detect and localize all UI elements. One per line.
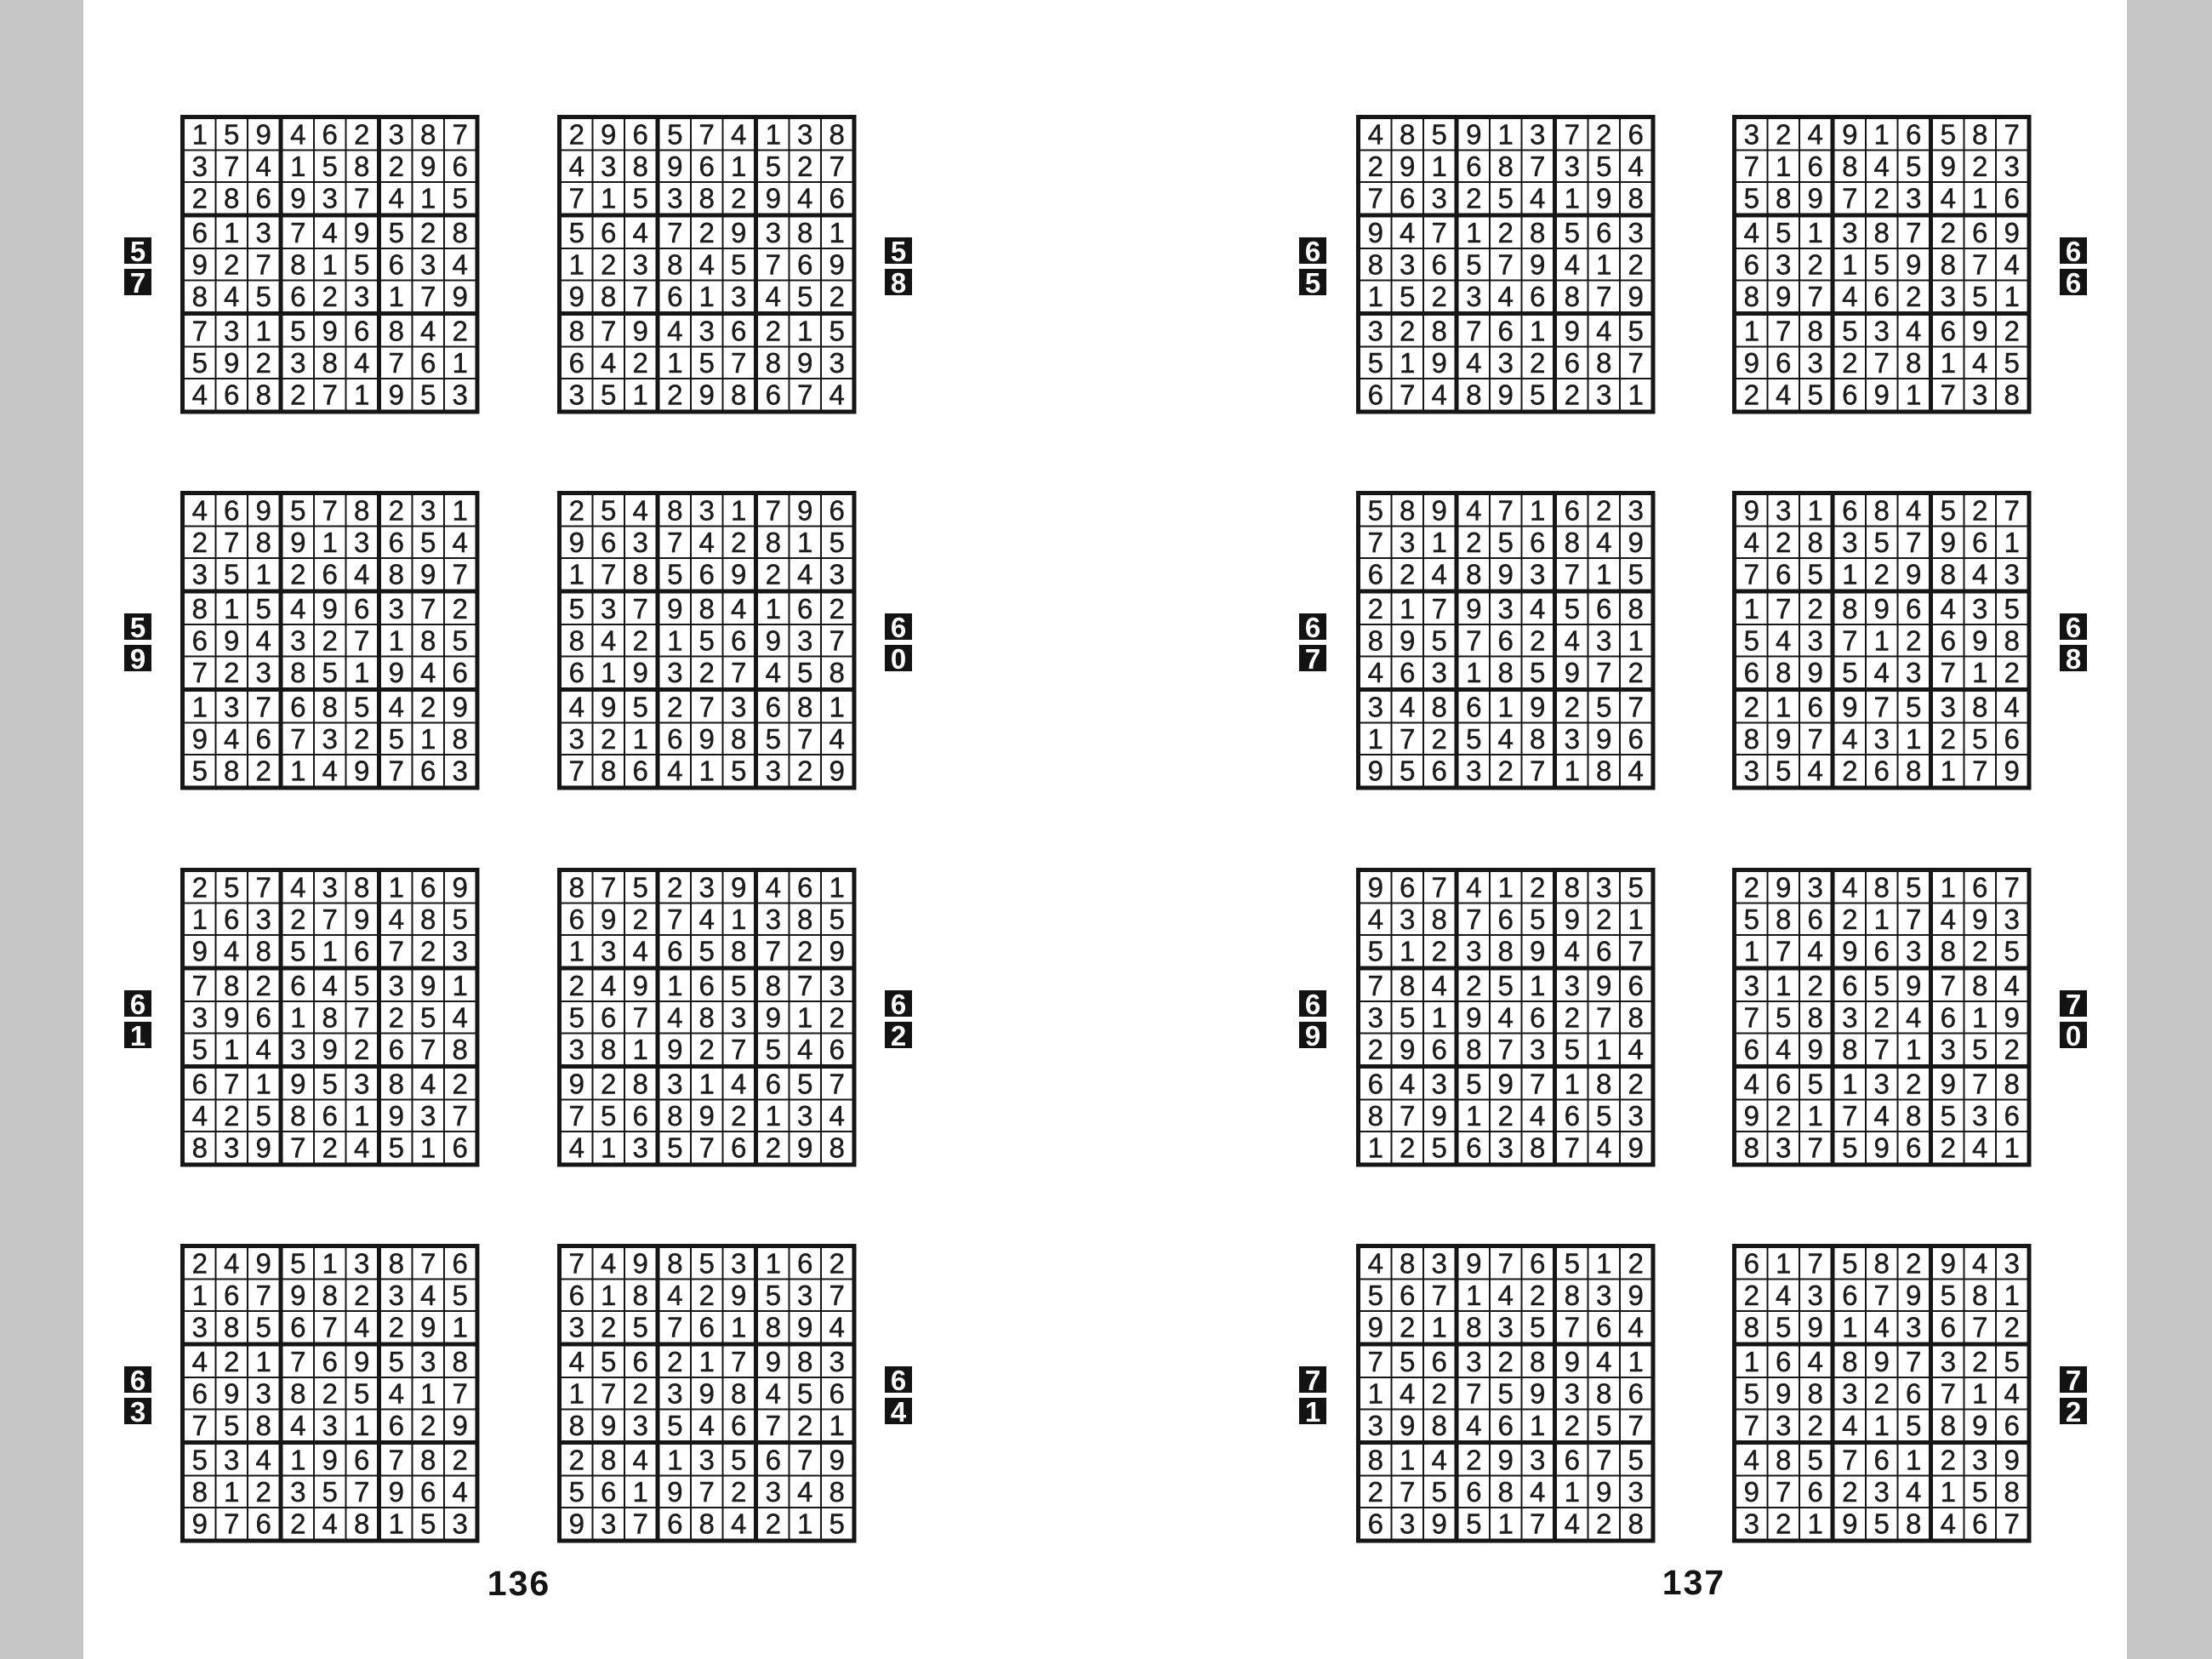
svg-text:8: 8 xyxy=(766,971,781,1002)
svg-text:8: 8 xyxy=(1842,151,1857,183)
svg-text:1: 1 xyxy=(569,1379,584,1411)
svg-text:8: 8 xyxy=(1565,873,1580,904)
svg-text:8: 8 xyxy=(1972,1280,1987,1312)
svg-text:9: 9 xyxy=(1628,282,1643,313)
svg-text:2: 2 xyxy=(667,1347,682,1378)
svg-text:5: 5 xyxy=(192,348,208,379)
svg-text:8: 8 xyxy=(192,1477,208,1508)
svg-text:7: 7 xyxy=(1596,1003,1611,1035)
svg-text:2: 2 xyxy=(2004,1313,2019,1344)
svg-text:4: 4 xyxy=(192,1101,208,1132)
svg-text:3: 3 xyxy=(797,1280,812,1312)
svg-text:6: 6 xyxy=(601,527,616,559)
svg-text:2: 2 xyxy=(1972,937,1987,968)
svg-text:7: 7 xyxy=(829,1280,844,1312)
svg-text:6: 6 xyxy=(354,937,369,968)
svg-text:7: 7 xyxy=(192,658,208,689)
svg-text:2: 2 xyxy=(1972,496,1987,527)
svg-text:8: 8 xyxy=(829,1133,844,1165)
svg-text:7: 7 xyxy=(1776,316,1791,348)
svg-text:6: 6 xyxy=(192,1069,208,1101)
svg-text:9: 9 xyxy=(1368,756,1383,788)
svg-text:2: 2 xyxy=(1744,380,1759,412)
svg-text:1: 1 xyxy=(2004,1280,2019,1312)
svg-text:2: 2 xyxy=(1596,120,1611,151)
svg-text:8: 8 xyxy=(667,1101,682,1132)
svg-text:4: 4 xyxy=(569,151,584,183)
svg-text:8: 8 xyxy=(1498,937,1514,968)
svg-text:9: 9 xyxy=(2004,1003,2019,1035)
svg-text:6: 6 xyxy=(1565,496,1580,527)
svg-text:3: 3 xyxy=(1431,1069,1446,1101)
svg-text:8: 8 xyxy=(255,380,271,412)
svg-text:4: 4 xyxy=(1368,658,1383,689)
svg-text:7: 7 xyxy=(1565,1133,1580,1165)
svg-text:5: 5 xyxy=(1744,184,1759,215)
svg-text:7: 7 xyxy=(1744,1411,1759,1442)
svg-text:2: 2 xyxy=(1368,594,1383,625)
svg-text:1: 1 xyxy=(2004,282,2019,313)
svg-text:2: 2 xyxy=(224,1101,239,1132)
svg-text:4: 4 xyxy=(1628,756,1643,788)
svg-text:8: 8 xyxy=(354,873,369,904)
svg-text:4: 4 xyxy=(1776,1035,1791,1066)
svg-text:5: 5 xyxy=(1972,1035,1987,1066)
svg-text:2: 2 xyxy=(1842,904,1857,936)
svg-text:7: 7 xyxy=(1565,560,1580,591)
svg-text:7: 7 xyxy=(1431,873,1446,904)
svg-text:5: 5 xyxy=(1972,724,1987,755)
svg-text:5: 5 xyxy=(290,496,305,527)
svg-text:4: 4 xyxy=(766,658,781,689)
svg-text:4: 4 xyxy=(255,151,271,183)
svg-text:7: 7 xyxy=(255,1280,271,1312)
svg-text:9: 9 xyxy=(322,1445,338,1477)
svg-text:8: 8 xyxy=(699,1003,715,1035)
svg-text:4: 4 xyxy=(1530,1101,1545,1132)
svg-text:7: 7 xyxy=(667,1313,682,1344)
svg-text:2: 2 xyxy=(1368,151,1383,183)
svg-text:4: 4 xyxy=(1628,1313,1643,1344)
svg-text:9: 9 xyxy=(1941,1069,1956,1101)
svg-text:4: 4 xyxy=(797,1477,812,1508)
svg-text:7: 7 xyxy=(420,1035,436,1066)
svg-text:2: 2 xyxy=(766,560,781,591)
svg-text:4: 4 xyxy=(1530,1477,1545,1508)
svg-text:8: 8 xyxy=(1368,1445,1383,1477)
svg-text:2: 2 xyxy=(290,1509,305,1541)
svg-text:1: 1 xyxy=(1431,1003,1446,1035)
svg-text:5: 5 xyxy=(1466,724,1481,755)
svg-text:6: 6 xyxy=(322,1101,338,1132)
svg-text:3: 3 xyxy=(192,1003,208,1035)
svg-text:2: 2 xyxy=(731,527,746,559)
svg-text:3: 3 xyxy=(290,1035,305,1066)
svg-text:3: 3 xyxy=(1874,1069,1890,1101)
svg-text:9: 9 xyxy=(2004,1445,2019,1477)
svg-text:9: 9 xyxy=(1628,527,1643,559)
svg-text:3: 3 xyxy=(354,527,369,559)
svg-text:8: 8 xyxy=(389,1069,404,1101)
svg-text:8: 8 xyxy=(1431,316,1446,348)
svg-text:3: 3 xyxy=(1498,1313,1514,1344)
svg-text:5: 5 xyxy=(1530,904,1545,936)
svg-text:9: 9 xyxy=(1744,348,1759,379)
svg-text:1: 1 xyxy=(224,594,239,625)
svg-text:4: 4 xyxy=(1906,1477,1921,1508)
svg-text:2: 2 xyxy=(1972,151,1987,183)
svg-text:1: 1 xyxy=(1941,756,1956,788)
svg-text:3: 3 xyxy=(389,594,404,625)
svg-text:4: 4 xyxy=(2004,250,2019,282)
svg-text:2: 2 xyxy=(1744,693,1759,724)
svg-text:2: 2 xyxy=(1596,904,1611,936)
svg-text:3: 3 xyxy=(1431,184,1446,215)
svg-text:4: 4 xyxy=(354,348,369,379)
svg-text:3: 3 xyxy=(601,151,616,183)
svg-text:9: 9 xyxy=(1842,120,1857,151)
svg-text:6: 6 xyxy=(699,971,715,1002)
svg-text:9: 9 xyxy=(1906,971,1921,1002)
svg-text:8: 8 xyxy=(699,594,715,625)
svg-text:5: 5 xyxy=(1498,184,1514,215)
svg-text:8: 8 xyxy=(1628,594,1643,625)
svg-text:9: 9 xyxy=(420,560,436,591)
svg-text:8: 8 xyxy=(1628,1003,1643,1035)
svg-text:4: 4 xyxy=(766,1379,781,1411)
svg-text:1: 1 xyxy=(354,1101,369,1132)
svg-text:1: 1 xyxy=(601,184,616,215)
svg-text:9: 9 xyxy=(389,380,404,412)
svg-text:7: 7 xyxy=(601,560,616,591)
svg-text:2: 2 xyxy=(290,904,305,936)
svg-text:5: 5 xyxy=(389,1133,404,1165)
svg-text:8: 8 xyxy=(2004,380,2019,412)
svg-text:7: 7 xyxy=(1628,348,1643,379)
svg-text:5: 5 xyxy=(452,626,467,658)
svg-text:2: 2 xyxy=(1565,380,1580,412)
svg-text:2: 2 xyxy=(829,594,844,625)
svg-text:4: 4 xyxy=(255,1035,271,1066)
svg-text:9: 9 xyxy=(1431,1509,1446,1541)
svg-text:3: 3 xyxy=(569,1313,584,1344)
svg-text:5: 5 xyxy=(1874,971,1890,1002)
svg-text:7: 7 xyxy=(1941,380,1956,412)
svg-text:7: 7 xyxy=(1498,250,1514,282)
svg-text:7: 7 xyxy=(1565,120,1580,151)
svg-text:5: 5 xyxy=(1530,658,1545,689)
svg-text:4: 4 xyxy=(1466,496,1481,527)
svg-text:5: 5 xyxy=(1941,1101,1956,1132)
svg-text:7: 7 xyxy=(290,1133,305,1165)
svg-text:6: 6 xyxy=(1498,316,1514,348)
svg-text:4: 4 xyxy=(1530,594,1545,625)
svg-text:5: 5 xyxy=(1776,1003,1791,1035)
svg-text:5: 5 xyxy=(2004,348,2019,379)
svg-text:1: 1 xyxy=(1565,1069,1580,1101)
svg-text:4: 4 xyxy=(224,282,239,313)
svg-text:1: 1 xyxy=(1628,626,1643,658)
svg-text:9: 9 xyxy=(322,594,338,625)
svg-text:7: 7 xyxy=(731,1035,746,1066)
svg-text:9: 9 xyxy=(1807,184,1822,215)
svg-text:3: 3 xyxy=(1744,120,1759,151)
svg-text:8: 8 xyxy=(192,594,208,625)
svg-text:7: 7 xyxy=(389,937,404,968)
svg-text:1: 1 xyxy=(1368,1133,1383,1165)
svg-text:8: 8 xyxy=(1842,594,1857,625)
svg-text:8: 8 xyxy=(1530,218,1545,249)
svg-text:9: 9 xyxy=(322,1035,338,1066)
svg-text:3: 3 xyxy=(224,316,239,348)
svg-text:7: 7 xyxy=(797,971,812,1002)
svg-text:1: 1 xyxy=(797,527,812,559)
svg-text:9: 9 xyxy=(797,496,812,527)
svg-text:5: 5 xyxy=(829,904,844,936)
svg-text:5: 5 xyxy=(224,560,239,591)
svg-text:6: 6 xyxy=(1842,380,1857,412)
svg-text:3: 3 xyxy=(797,626,812,658)
svg-text:5: 5 xyxy=(797,282,812,313)
svg-text:4: 4 xyxy=(322,756,338,788)
svg-text:5: 5 xyxy=(1906,151,1921,183)
svg-text:9: 9 xyxy=(766,1003,781,1035)
svg-text:9: 9 xyxy=(1565,658,1580,689)
svg-text:9: 9 xyxy=(1596,1477,1611,1508)
svg-text:9: 9 xyxy=(192,250,208,282)
svg-text:2: 2 xyxy=(1941,218,1956,249)
svg-text:6: 6 xyxy=(192,1379,208,1411)
svg-text:4: 4 xyxy=(1776,1280,1791,1312)
svg-text:3: 3 xyxy=(192,560,208,591)
svg-text:1: 1 xyxy=(1466,1280,1481,1312)
svg-text:7: 7 xyxy=(1466,904,1481,936)
svg-text:1: 1 xyxy=(1431,527,1446,559)
svg-text:4: 4 xyxy=(2004,693,2019,724)
svg-text:7: 7 xyxy=(389,348,404,379)
svg-text:5: 5 xyxy=(1744,626,1759,658)
svg-text:8: 8 xyxy=(601,1035,616,1066)
svg-text:3: 3 xyxy=(389,1280,404,1312)
svg-text:5: 5 xyxy=(1941,1280,1956,1312)
svg-text:7: 7 xyxy=(322,380,338,412)
svg-text:5: 5 xyxy=(1807,1445,1822,1477)
svg-text:7: 7 xyxy=(1628,693,1643,724)
svg-text:5: 5 xyxy=(1842,658,1857,689)
svg-text:7: 7 xyxy=(354,626,369,658)
svg-text:7: 7 xyxy=(829,1069,844,1101)
svg-text:5: 5 xyxy=(452,1280,467,1312)
svg-text:7: 7 xyxy=(1368,1347,1383,1378)
svg-text:6: 6 xyxy=(829,496,844,527)
svg-text:7: 7 xyxy=(1874,693,1890,724)
svg-text:6: 6 xyxy=(632,1347,647,1378)
svg-text:3: 3 xyxy=(2004,151,2019,183)
svg-text:1: 1 xyxy=(1596,560,1611,591)
svg-text:3: 3 xyxy=(569,380,584,412)
svg-text:8: 8 xyxy=(1466,560,1481,591)
svg-text:6: 6 xyxy=(1565,1445,1580,1477)
svg-text:8: 8 xyxy=(420,904,436,936)
svg-text:1: 1 xyxy=(569,250,584,282)
svg-text:4: 4 xyxy=(1498,1280,1514,1312)
svg-text:1: 1 xyxy=(632,724,647,755)
svg-text:1: 1 xyxy=(389,282,404,313)
svg-text:1: 1 xyxy=(354,380,369,412)
svg-text:3: 3 xyxy=(1368,693,1383,724)
svg-text:2: 2 xyxy=(2004,316,2019,348)
svg-text:6: 6 xyxy=(1906,120,1921,151)
svg-text:3: 3 xyxy=(354,1249,369,1280)
svg-text:8: 8 xyxy=(1941,250,1956,282)
svg-text:5: 5 xyxy=(290,937,305,968)
svg-text:3: 3 xyxy=(766,218,781,249)
svg-text:6: 6 xyxy=(766,380,781,412)
svg-text:5: 5 xyxy=(1596,151,1611,183)
svg-text:6: 6 xyxy=(420,348,436,379)
svg-text:4: 4 xyxy=(389,1379,404,1411)
svg-text:7: 7 xyxy=(766,1411,781,1442)
svg-text:3: 3 xyxy=(731,282,746,313)
svg-text:6: 6 xyxy=(389,1411,404,1442)
svg-text:8: 8 xyxy=(766,1313,781,1344)
svg-text:5: 5 xyxy=(354,971,369,1002)
svg-text:9: 9 xyxy=(420,151,436,183)
svg-text:5: 5 xyxy=(1431,1133,1446,1165)
svg-text:5: 5 xyxy=(2004,937,2019,968)
svg-text:7: 7 xyxy=(224,1509,239,1541)
svg-text:6: 6 xyxy=(255,1509,271,1541)
svg-text:9: 9 xyxy=(224,348,239,379)
svg-text:7: 7 xyxy=(1596,1445,1611,1477)
svg-text:4: 4 xyxy=(1400,1069,1415,1101)
svg-text:8: 8 xyxy=(420,1445,436,1477)
svg-text:4: 4 xyxy=(1972,560,1987,591)
svg-text:4: 4 xyxy=(255,1445,271,1477)
svg-text:2: 2 xyxy=(1530,873,1545,904)
svg-text:6: 6 xyxy=(1400,658,1415,689)
svg-text:1: 1 xyxy=(667,626,682,658)
svg-text:2: 2 xyxy=(1874,1379,1890,1411)
svg-text:6: 6 xyxy=(192,626,208,658)
svg-text:8: 8 xyxy=(1874,218,1890,249)
svg-text:7: 7 xyxy=(1807,1133,1822,1165)
svg-text:5: 5 xyxy=(255,282,271,313)
svg-text:1: 1 xyxy=(829,218,844,249)
svg-text:8: 8 xyxy=(1400,120,1415,151)
svg-text:4: 4 xyxy=(1874,1313,1890,1344)
svg-text:3: 3 xyxy=(1400,250,1415,282)
svg-text:7: 7 xyxy=(2004,496,2019,527)
svg-text:7: 7 xyxy=(1368,971,1383,1002)
svg-text:6: 6 xyxy=(420,756,436,788)
svg-text:8: 8 xyxy=(731,937,746,968)
svg-text:3: 3 xyxy=(731,1249,746,1280)
svg-text:9: 9 xyxy=(829,250,844,282)
svg-text:3: 3 xyxy=(1368,316,1383,348)
svg-text:5: 5 xyxy=(601,1101,616,1132)
svg-text:3: 3 xyxy=(699,316,715,348)
svg-text:3: 3 xyxy=(192,1313,208,1344)
svg-text:9: 9 xyxy=(1431,496,1446,527)
svg-text:6: 6 xyxy=(1431,250,1446,282)
svg-text:1: 1 xyxy=(601,658,616,689)
svg-text:7: 7 xyxy=(452,1101,467,1132)
svg-text:1: 1 xyxy=(1906,724,1921,755)
svg-text:5: 5 xyxy=(699,626,715,658)
svg-text:1: 1 xyxy=(1874,1411,1890,1442)
svg-text:4: 4 xyxy=(1776,380,1791,412)
svg-text:9: 9 xyxy=(699,1379,715,1411)
svg-text:1: 1 xyxy=(1431,1313,1446,1344)
svg-text:2: 2 xyxy=(255,1477,271,1508)
svg-text:1: 1 xyxy=(667,971,682,1002)
svg-text:5: 5 xyxy=(420,1003,436,1035)
svg-text:4: 4 xyxy=(1400,1379,1415,1411)
svg-text:2: 2 xyxy=(667,380,682,412)
svg-text:6: 6 xyxy=(1565,348,1580,379)
svg-text:8: 8 xyxy=(1906,348,1921,379)
svg-text:8: 8 xyxy=(322,348,338,379)
svg-text:8: 8 xyxy=(389,316,404,348)
svg-text:3: 3 xyxy=(1941,693,1956,724)
svg-text:3: 3 xyxy=(1776,1133,1791,1165)
svg-text:7: 7 xyxy=(766,937,781,968)
svg-text:6: 6 xyxy=(731,1133,746,1165)
svg-text:2: 2 xyxy=(1906,1069,1921,1101)
svg-text:2: 2 xyxy=(1744,873,1759,904)
svg-text:5: 5 xyxy=(632,693,647,724)
svg-text:6: 6 xyxy=(1941,316,1956,348)
svg-text:1: 1 xyxy=(1941,348,1956,379)
svg-text:1: 1 xyxy=(1972,184,1987,215)
svg-text:8: 8 xyxy=(569,1411,584,1442)
svg-text:2: 2 xyxy=(1565,1003,1580,1035)
svg-text:1: 1 xyxy=(420,184,436,215)
svg-text:5: 5 xyxy=(192,1445,208,1477)
svg-text:9: 9 xyxy=(420,971,436,1002)
svg-text:1: 1 xyxy=(1744,316,1759,348)
svg-text:1: 1 xyxy=(1530,1411,1545,1442)
svg-text:7: 7 xyxy=(667,527,682,559)
svg-text:7: 7 xyxy=(1807,282,1822,313)
svg-text:5: 5 xyxy=(192,1035,208,1066)
svg-text:5: 5 xyxy=(1628,316,1643,348)
svg-text:6: 6 xyxy=(1368,1069,1383,1101)
svg-text:8: 8 xyxy=(354,151,369,183)
svg-text:6: 6 xyxy=(667,724,682,755)
svg-text:3: 3 xyxy=(601,1509,616,1541)
svg-text:8: 8 xyxy=(1431,904,1446,936)
svg-text:7: 7 xyxy=(255,873,271,904)
svg-text:1: 1 xyxy=(1530,496,1545,527)
svg-text:7: 7 xyxy=(389,1445,404,1477)
svg-text:2: 2 xyxy=(1776,527,1791,559)
svg-text:6: 6 xyxy=(1744,1035,1759,1066)
svg-text:5: 5 xyxy=(1842,1133,1857,1165)
svg-text:8: 8 xyxy=(797,904,812,936)
svg-text:1: 1 xyxy=(389,1509,404,1541)
svg-text:8: 8 xyxy=(731,724,746,755)
svg-text:5: 5 xyxy=(1842,316,1857,348)
svg-text:2: 2 xyxy=(1628,1249,1643,1280)
svg-text:3: 3 xyxy=(290,626,305,658)
svg-text:2: 2 xyxy=(1906,626,1921,658)
svg-text:3: 3 xyxy=(699,496,715,527)
svg-text:9: 9 xyxy=(632,971,647,1002)
svg-text:5: 5 xyxy=(766,1035,781,1066)
svg-text:6: 6 xyxy=(389,1035,404,1066)
